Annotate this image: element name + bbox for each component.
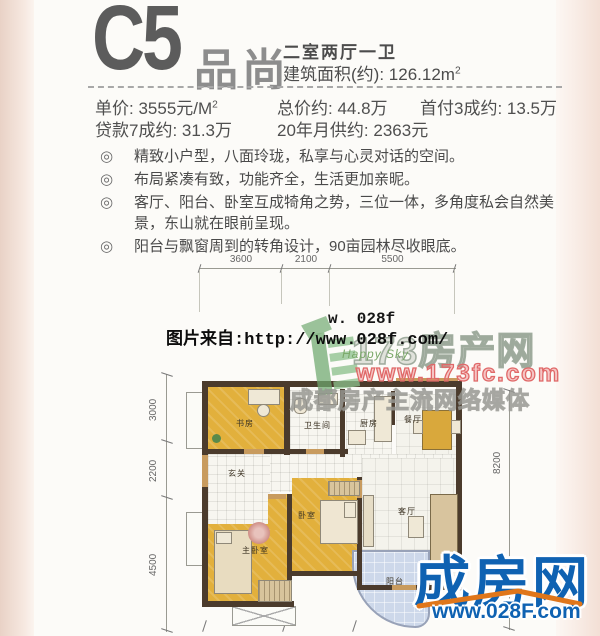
wardrobe [328,481,360,496]
dining-table [422,410,452,450]
bay-window-bottom [232,606,296,626]
wall [287,571,362,576]
price-loan: 贷款7成约: 31.3万 [95,116,232,141]
door [244,449,264,454]
price-monthly-label: 20年月供约: [277,121,369,140]
label-bedroom: 卧室 [298,510,316,521]
price-down-value: 13.5万 [507,99,557,118]
bullet-icon: ◎ [100,169,134,190]
door [268,494,286,499]
stove [348,430,366,445]
label-dining: 餐厅 [404,414,422,425]
dim-tick [161,372,173,377]
chengfang-url: www.028F.com [432,600,581,624]
feature-item: ◎ 精致小户型，八面玲珑，私享与心灵对话的空间。 [100,146,558,167]
feature-text: 客厅、阳台、卧室互成犄角之势，三位一体，多角度私会自然美景，东山就在眼前呈现。 [134,192,558,234]
wardrobe [258,580,292,602]
feature-list: ◎ 精致小户型，八面玲珑，私享与心灵对话的空间。 ◎ 布局紧凑有致，功能齐全，生… [100,146,558,257]
dim-right-1: 8200 [492,435,503,491]
dim-extension [454,270,455,314]
plant [212,434,221,443]
bullet-icon: ◎ [100,236,134,257]
feature-item: ◎ 客厅、阳台、卧室互成犄角之势，三位一体，多角度私会自然美景，东山就在眼前呈现… [100,192,558,234]
area-value: 126.12m [389,65,455,84]
label-study: 书房 [236,418,254,429]
price-monthly-value: 2363元 [373,121,428,140]
watermark-media-line: 成都房产主流网络媒体 [290,381,530,415]
scan-edge-left [0,0,34,636]
price-loan-label: 贷款7成约: [95,121,177,140]
dim-tick [161,628,173,633]
dim-tick [352,620,357,632]
feature-item: ◎ 布局紧凑有致，功能齐全，生活更加亲昵。 [100,169,558,190]
wall [208,449,348,454]
price-loan-value: 31.3万 [182,121,232,140]
dashed-divider [88,86,562,88]
door [202,455,208,487]
coffee-table [408,516,424,538]
bullet-icon: ◎ [100,192,134,234]
bullet-icon: ◎ [100,146,134,167]
pillow [344,502,356,518]
feature-text: 阳台与飘窗周到的转角设计，90亩园林尽收眼底。 [134,236,558,257]
label-master: 主卧室 [242,545,269,556]
label-bathroom: 卫生间 [304,420,331,431]
price-monthly: 20年月供约: 2363元 [277,116,428,141]
dim-tick [161,495,173,500]
dim-left-2: 2200 [148,446,159,496]
watermark-source-url: 图片来自:http://www.028f.com/ [166,324,448,350]
dim-extension [329,270,330,306]
dim-left-3: 4500 [148,525,159,605]
label-living: 客厅 [398,506,416,517]
label-kitchen: 厨房 [360,418,378,429]
price-downpayment: 首付3成约: 13.5万 [420,94,557,119]
price-down-label: 首付3成约: [420,99,502,118]
label-balcony: 阳台 [386,576,404,587]
door [306,449,324,454]
dim-extension [281,270,282,304]
feature-item: ◎ 阳台与飘窗周到的转角设计，90亩园林尽收眼底。 [100,236,558,257]
dim-extension [199,270,200,312]
pillow [216,532,232,544]
dim-line-left [166,374,167,632]
dim-tick [161,439,173,444]
scanned-floorplan-flyer: { "header": { "code": "C5", "name": "品尚"… [0,0,600,636]
unit-name: 品尚 [194,34,290,98]
area-sup: 2 [455,65,461,76]
dim-tick [202,620,207,632]
area-label: 建筑面积(约): [283,65,384,84]
feature-text: 布局紧凑有致，功能齐全，生活更加亲昵。 [134,169,558,190]
feature-text: 精致小户型，八面玲珑，私享与心灵对话的空间。 [134,146,558,167]
unit-area: 建筑面积(约): 126.12m2 [283,60,461,85]
dim-left-1: 3000 [148,380,159,440]
unit-code: C5 [92,0,180,86]
desk [248,389,280,405]
tv-cabinet [363,495,374,547]
chair [451,420,461,434]
price-unit-sup: 2 [212,99,218,110]
label-foyer: 玄关 [228,468,246,479]
rug [248,522,270,544]
chair [257,404,270,417]
wall [202,381,208,607]
